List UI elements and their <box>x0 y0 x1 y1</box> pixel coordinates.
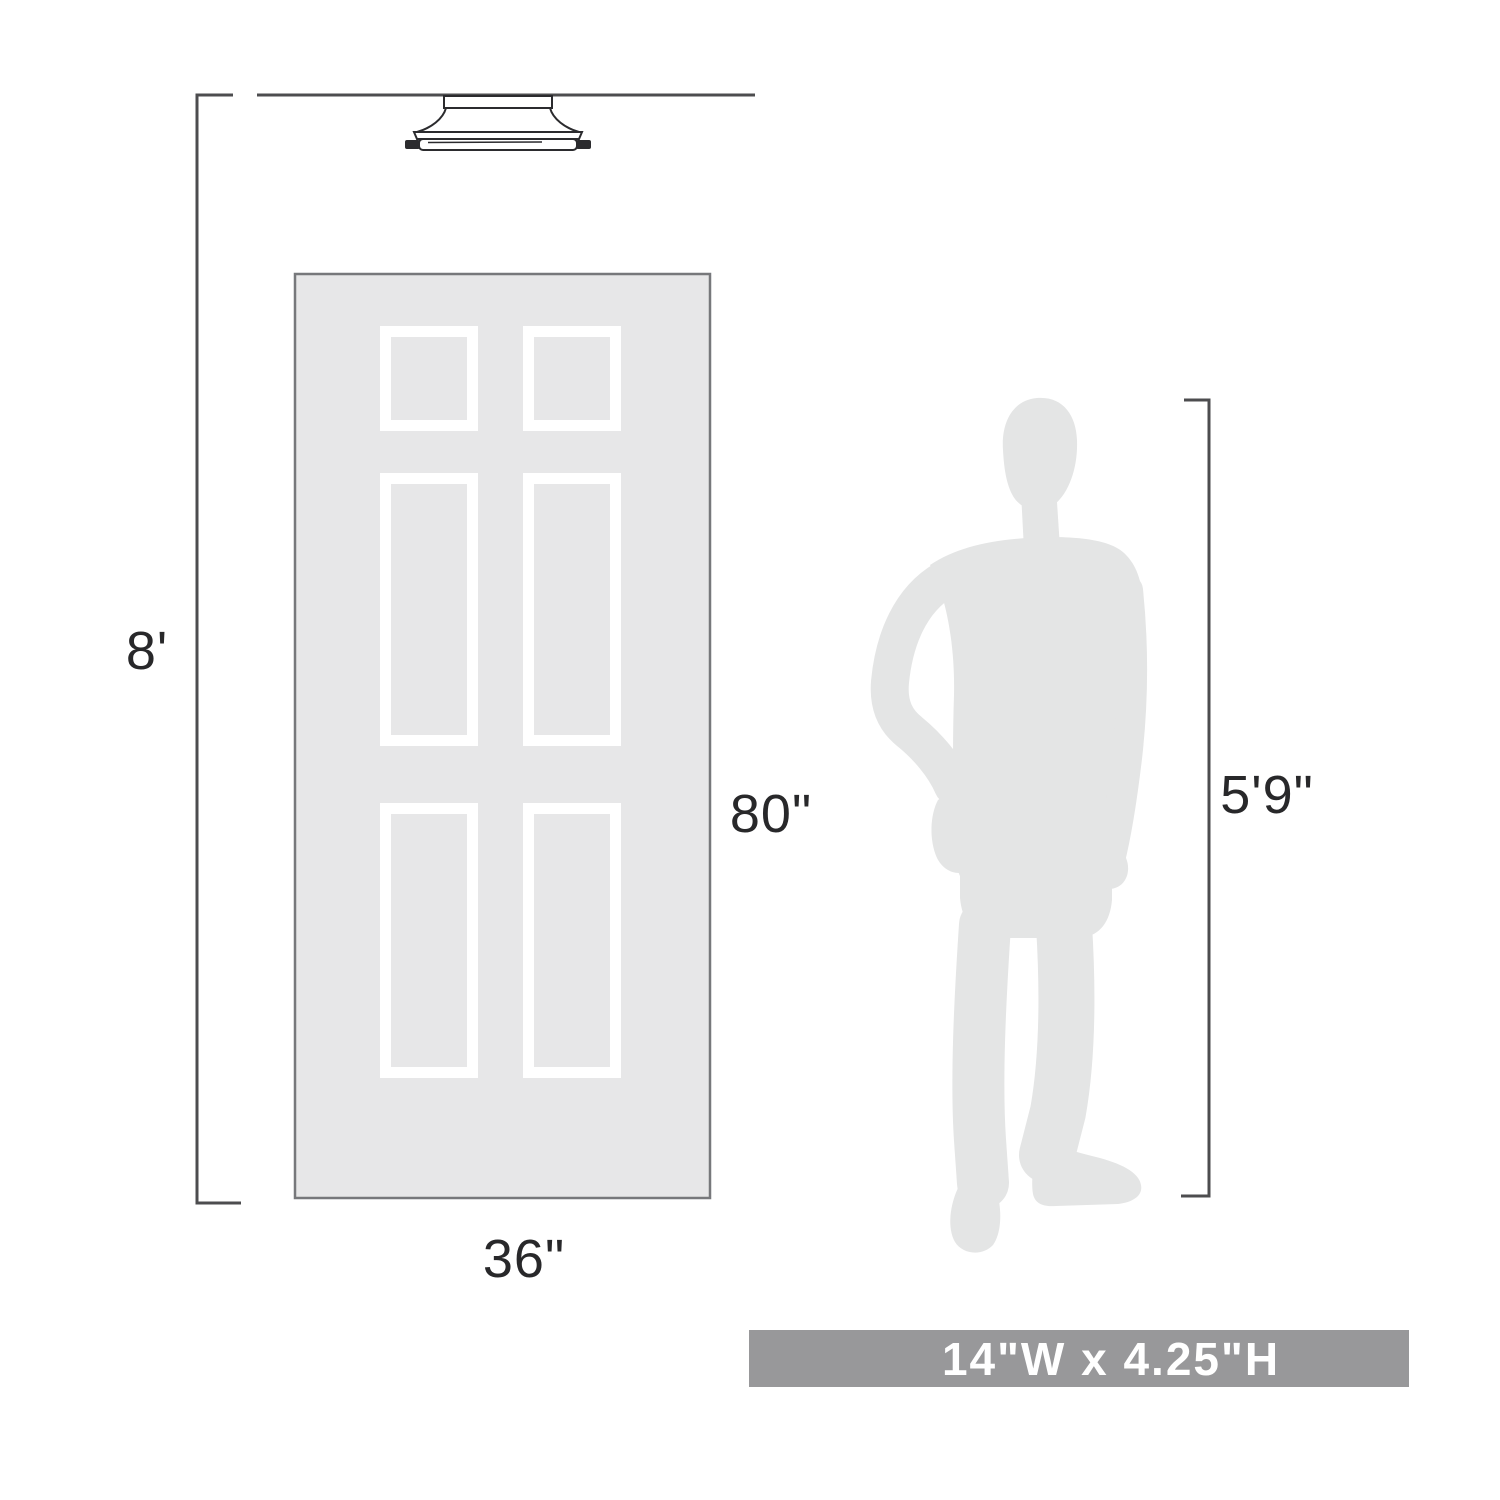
person-left-leg <box>978 925 985 1183</box>
person-silhouette <box>890 398 1146 1253</box>
door-panel-inset <box>391 814 467 1067</box>
fixture-rim <box>419 139 577 150</box>
door-illustration <box>295 274 710 1198</box>
person-left-shoe <box>950 1182 1000 1253</box>
door-panel-inset <box>391 484 467 735</box>
fixture-knob-right <box>576 140 591 149</box>
ceiling-light-fixture <box>405 96 591 150</box>
door-panel-inset <box>534 337 610 420</box>
scale-diagram-drawing <box>0 0 1500 1500</box>
person-head <box>1003 398 1077 510</box>
fixture-knob-left <box>405 140 420 149</box>
door-panel <box>523 326 621 431</box>
ceiling-height-label: 8' <box>126 620 168 682</box>
ceiling-height-dimension-line <box>197 95 241 1203</box>
fixture-rim-detail <box>428 142 542 143</box>
person-left-arm <box>890 580 953 786</box>
door-width-label: 36" <box>483 1228 565 1290</box>
person-right-leg <box>1047 925 1066 1155</box>
door-panel <box>523 473 621 746</box>
person-height-label: 5'9" <box>1220 764 1314 826</box>
fixture-dome <box>417 108 579 132</box>
door-panel <box>380 326 478 431</box>
fixture-canopy <box>444 96 552 108</box>
scale-diagram: 8' 80" 36" 5'9" 14"W x 4.25"H <box>0 0 1500 1500</box>
door-panel <box>380 803 478 1078</box>
door-panel-inset <box>534 484 610 735</box>
person-height-dimension-line <box>1181 400 1209 1196</box>
door-height-label: 80" <box>730 783 812 845</box>
person-right-shoe <box>1032 1142 1141 1206</box>
door-panel-inset <box>534 814 610 1067</box>
door-panel <box>380 473 478 746</box>
fixture-size-label: 14"W x 4.25"H <box>942 1332 1280 1386</box>
door-panel-inset <box>391 337 467 420</box>
door-panel <box>523 803 621 1078</box>
door-slab <box>295 274 710 1198</box>
fixture-size-banner: 14"W x 4.25"H <box>749 1330 1409 1387</box>
fixture-band <box>414 132 582 139</box>
